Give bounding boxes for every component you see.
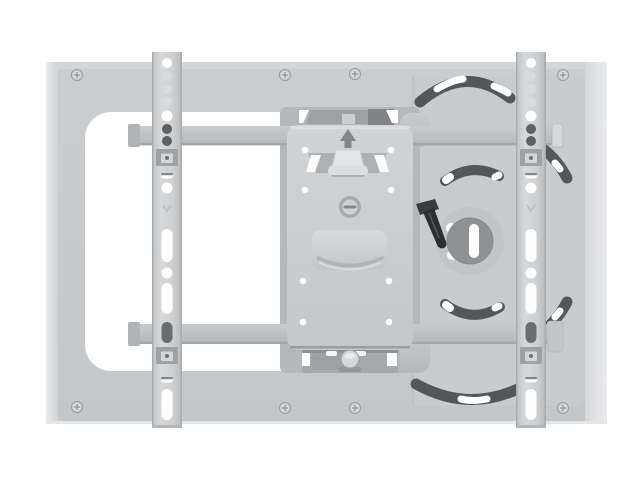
arm-end-bracket bbox=[547, 321, 563, 352]
wall-plate-right-side bbox=[585, 62, 607, 421]
vesa-hole bbox=[386, 319, 393, 326]
vesa-bottom-edge bbox=[290, 346, 410, 349]
left-tv-rail bbox=[152, 52, 182, 428]
mounting-screw bbox=[350, 403, 361, 414]
backing-dash bbox=[326, 351, 337, 356]
arc-slot-opening bbox=[495, 306, 499, 308]
swivel-disc-assembly bbox=[436, 207, 504, 275]
backing-notch bbox=[387, 353, 397, 366]
vesa-hole bbox=[302, 147, 309, 154]
backing-notch bbox=[302, 353, 310, 366]
disc-slot bbox=[469, 224, 479, 258]
right-tv-rail bbox=[516, 52, 546, 428]
vesa-hole bbox=[300, 319, 307, 326]
arm-end-cap bbox=[128, 322, 140, 346]
vesa-adapter-plate bbox=[287, 125, 413, 350]
arm-end-cap bbox=[552, 124, 563, 147]
wall-plate-left-side bbox=[46, 62, 58, 421]
mount-render bbox=[0, 0, 640, 480]
mounting-screw bbox=[350, 69, 361, 80]
arc-slot-opening bbox=[446, 177, 450, 180]
vesa-hole bbox=[386, 278, 393, 285]
vesa-top-highlight bbox=[290, 126, 410, 129]
arc-slot-opening bbox=[446, 305, 450, 308]
mounting-screw bbox=[72, 70, 83, 81]
hinge-tab bbox=[342, 114, 355, 124]
mounting-screw bbox=[280, 70, 291, 81]
mounting-screw bbox=[280, 403, 291, 414]
wall-plate-top-highlight bbox=[58, 62, 585, 69]
arc-slot-opening bbox=[461, 399, 487, 401]
vesa-hole bbox=[388, 147, 395, 154]
center-adjustment-screw bbox=[339, 196, 361, 218]
mounting-screw bbox=[558, 70, 569, 81]
vesa-hole bbox=[300, 278, 307, 285]
vesa-hole bbox=[302, 187, 309, 194]
arc-slot-opening bbox=[555, 311, 560, 317]
arm-end-cap bbox=[128, 124, 140, 147]
cable-recess bbox=[312, 230, 387, 270]
vesa-hole bbox=[388, 187, 395, 194]
arc-slot-opening bbox=[495, 175, 499, 177]
arc-slot-opening bbox=[555, 163, 560, 169]
mounting-screw bbox=[558, 403, 569, 414]
product-image-tv-wall-mount bbox=[0, 0, 640, 480]
lever-tip bbox=[438, 240, 447, 249]
mounting-screw bbox=[72, 402, 83, 413]
